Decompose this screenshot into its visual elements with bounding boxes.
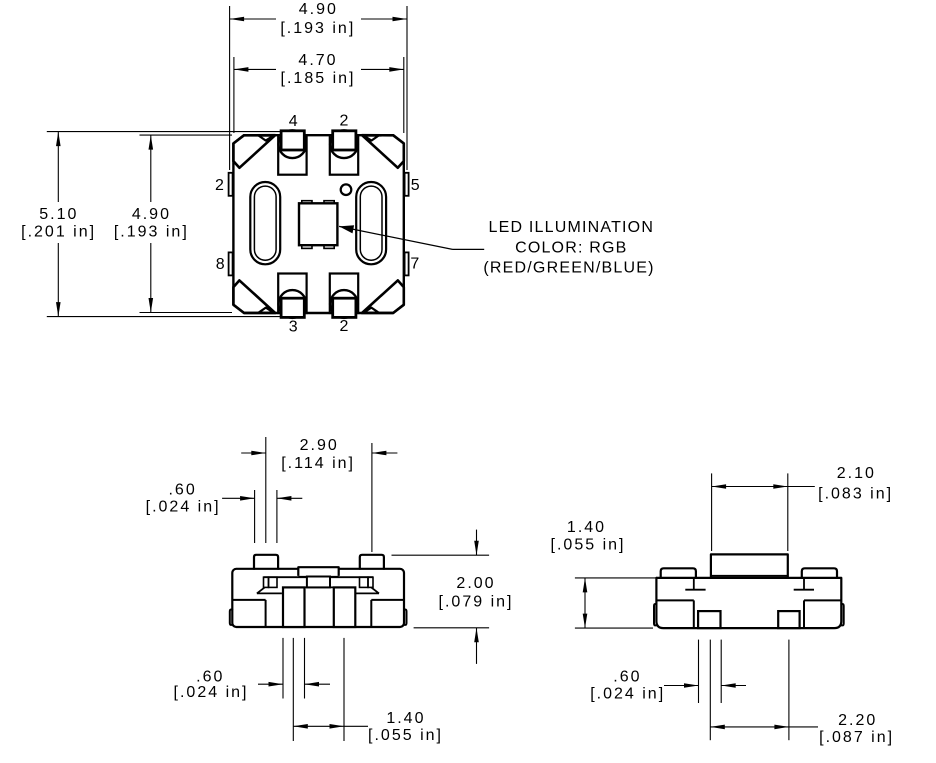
svg-text:(RED/GREEN/BLUE): (RED/GREEN/BLUE) bbox=[483, 260, 654, 277]
svg-text:COLOR: RGB: COLOR: RGB bbox=[515, 239, 627, 256]
svg-text:.60: .60 bbox=[196, 669, 224, 686]
svg-text:[.193 in]: [.193 in] bbox=[114, 224, 189, 241]
svg-text:[.201 in]: [.201 in] bbox=[21, 224, 96, 241]
svg-text:4.90: 4.90 bbox=[132, 206, 171, 223]
svg-text:[.087 in]: [.087 in] bbox=[819, 729, 894, 746]
svg-text:2.00: 2.00 bbox=[456, 575, 495, 592]
svg-text:[.114 in]: [.114 in] bbox=[281, 455, 355, 472]
svg-text:2.90: 2.90 bbox=[300, 437, 339, 454]
svg-text:1.40: 1.40 bbox=[386, 710, 425, 727]
svg-text:LED ILLUMINATION: LED ILLUMINATION bbox=[488, 219, 654, 236]
svg-text:1.40: 1.40 bbox=[567, 519, 606, 536]
svg-text:[.024 in]: [.024 in] bbox=[146, 499, 221, 516]
svg-text:[.185 in]: [.185 in] bbox=[281, 70, 356, 87]
svg-text:2.10: 2.10 bbox=[837, 465, 876, 482]
svg-text:2: 2 bbox=[340, 112, 349, 129]
svg-text:3: 3 bbox=[289, 319, 298, 336]
svg-text:2: 2 bbox=[340, 318, 349, 335]
svg-text:7: 7 bbox=[410, 256, 419, 273]
svg-text:4.70: 4.70 bbox=[298, 52, 337, 69]
svg-text:2.20: 2.20 bbox=[838, 712, 877, 729]
svg-text:8: 8 bbox=[216, 256, 225, 273]
svg-text:5: 5 bbox=[411, 177, 420, 194]
svg-text:[.079 in]: [.079 in] bbox=[439, 594, 514, 611]
svg-text:[.055 in]: [.055 in] bbox=[368, 727, 443, 744]
svg-text:.60: .60 bbox=[613, 669, 641, 686]
svg-text:[.083 in]: [.083 in] bbox=[818, 485, 893, 502]
svg-text:[.055 in]: [.055 in] bbox=[551, 536, 626, 553]
svg-text:4: 4 bbox=[289, 113, 298, 130]
svg-text:[.193 in]: [.193 in] bbox=[280, 20, 355, 37]
svg-text:2: 2 bbox=[215, 177, 224, 194]
svg-text:4.90: 4.90 bbox=[299, 1, 338, 18]
svg-text:5.10: 5.10 bbox=[39, 206, 78, 223]
svg-text:[.024 in]: [.024 in] bbox=[590, 686, 665, 703]
svg-text:.60: .60 bbox=[168, 481, 196, 498]
svg-text:[.024 in]: [.024 in] bbox=[174, 684, 249, 701]
